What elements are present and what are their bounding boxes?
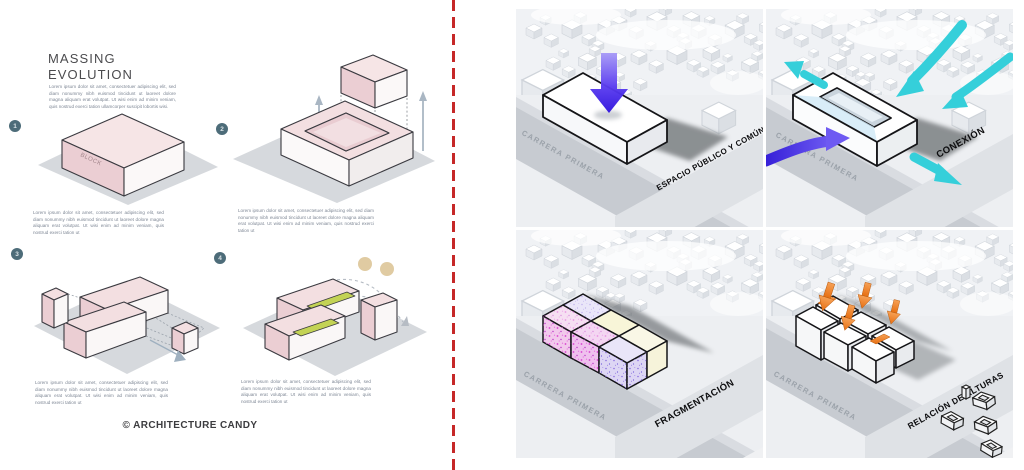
urban-strategy-board: CARRERA PRIMERA ESPACIO PÚBLICO Y COMÚN … <box>516 9 1013 458</box>
pulled-slab-left <box>42 288 68 328</box>
step-1-caption: Lorem ipsum dolor sit amet, consectetuer… <box>33 210 164 236</box>
sun-dot <box>380 262 394 276</box>
page-title-line1: MASSING <box>48 51 116 66</box>
sun-dot <box>358 257 372 271</box>
quadrant-conexion: CARRERA PRIMERA <box>766 9 1013 227</box>
step-2-diagram-lift-courtyard <box>225 53 440 205</box>
copyright-credit: © ARCHITECTURE CANDY <box>40 420 340 431</box>
screenshot-root: MASSING EVOLUTION Lorem ipsum dolor sit … <box>0 0 1024 470</box>
step-1-badge: 1 <box>9 120 21 132</box>
page-title: MASSING EVOLUTION <box>48 51 133 83</box>
step-3-caption: Lorem ipsum dolor sit amet, consectetuer… <box>35 380 168 406</box>
page-divider-dashed-line <box>452 0 455 470</box>
floating-block <box>341 55 407 108</box>
step-2-caption: Lorem ipsum dolor sit amet, consectetuer… <box>238 208 374 234</box>
massing-evolution-board: MASSING EVOLUTION Lorem ipsum dolor sit … <box>0 0 446 470</box>
step-3-diagram-split <box>12 252 227 378</box>
pulled-slab-right <box>172 322 198 354</box>
arrow-shadow <box>594 111 622 120</box>
quadrant-fragmentacion: CARRERA PRIMERA <box>516 230 763 458</box>
intro-paragraph: Lorem ipsum dolor sit amet, consectetuer… <box>49 84 176 110</box>
step-1-diagram-block: BLOCK <box>28 112 228 207</box>
page-title-line2: EVOLUTION <box>48 67 133 82</box>
quadrant-relacion-alturas: CARRERA PRIMERA <box>766 230 1013 458</box>
quadrant-espacio-publico: CARRERA PRIMERA ESPACIO PÚBLICO Y COMÚN <box>516 9 763 227</box>
step-4-caption: Lorem ipsum dolor sit amet, consectetuer… <box>241 379 371 405</box>
tall-slab <box>361 293 397 340</box>
slab-icon <box>962 385 970 399</box>
step-4-diagram-sunpath <box>213 250 440 378</box>
